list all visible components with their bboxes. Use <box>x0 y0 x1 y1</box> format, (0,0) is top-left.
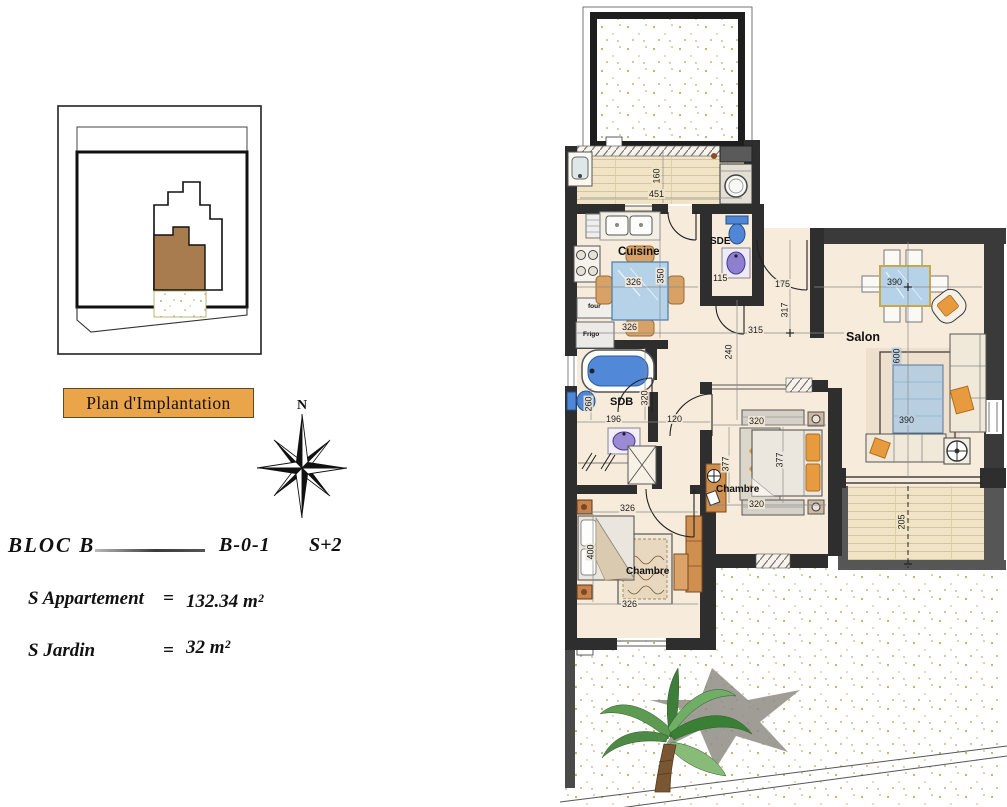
dim-rug-length: 600 <box>892 347 902 364</box>
site-plan <box>57 105 262 355</box>
dim-terrace-depth: 205 <box>897 513 907 530</box>
site-plan-caption-text: Plan d'Implantation <box>86 393 230 414</box>
room-label-chambre-bottom: Chambre <box>626 566 669 577</box>
dim-hall-depth: 240 <box>724 343 734 360</box>
level-label: S+2 <box>309 534 342 557</box>
kitchen-sink-icon <box>586 212 660 240</box>
site-plan-drawing <box>57 105 262 355</box>
compass-rose: N <box>255 396 350 518</box>
area-garden-equals: = <box>163 640 174 662</box>
dim-entry-door: 175 <box>774 279 791 289</box>
room-label-chambre-middle: Chambre <box>716 484 759 495</box>
dim-corridor-width: 120 <box>666 414 683 424</box>
dim-wc-height: 260 <box>584 395 594 412</box>
room-label-sdb: SDB <box>610 396 633 408</box>
dim-sdb-width: 196 <box>605 414 622 424</box>
area-garden-value: 32 m² <box>186 637 230 659</box>
dim-bedroom2-top: 320 <box>748 416 765 426</box>
dim-kitchen-width: 326 <box>621 322 638 332</box>
sofa-bottom-icon <box>866 434 946 462</box>
unit-label: B-0-1 <box>219 534 271 557</box>
terrace <box>838 486 1006 570</box>
dim-salon-table: 390 <box>886 277 903 287</box>
dim-hall-width: 315 <box>747 325 764 335</box>
area-apartment-equals: = <box>163 588 174 610</box>
garden-top <box>583 7 752 150</box>
bathtub-icon <box>582 350 654 392</box>
room-label-sde: SDE <box>710 236 731 247</box>
compass-star <box>257 414 347 518</box>
dim-kitchen-depth: 350 <box>656 267 666 284</box>
appliance-label-frigo: Frigo <box>583 331 599 338</box>
room-label-cuisine: Cuisine <box>618 246 660 258</box>
bedroom2-bed-icon <box>752 430 822 496</box>
area-apartment-value: 132.34 m² <box>186 591 263 613</box>
appliance-label-four: four <box>588 303 601 310</box>
title-divider-line <box>95 549 205 552</box>
area-apartment-label: S Appartement <box>28 588 144 610</box>
dim-bedroom2-left: 377 <box>721 455 731 472</box>
dim-kitchen-table: 326 <box>625 277 642 287</box>
dim-bedroom1-top: 326 <box>619 503 636 513</box>
dim-bedroom2-bottom: 320 <box>748 499 765 509</box>
loggia-sink-icon <box>568 152 592 186</box>
floor-plan-sheet: Plan d'Implantation N BLOC B B-0-1 S+2 S… <box>0 0 1007 807</box>
area-garden-label: S Jardin <box>28 640 95 662</box>
loggia-railing <box>577 146 744 156</box>
dim-entry-depth: 317 <box>780 301 790 318</box>
dim-rug-width: 390 <box>898 415 915 425</box>
dim-loggia-width: 451 <box>648 189 665 199</box>
stove-icon <box>574 246 600 282</box>
dim-sde-width: 115 <box>712 273 728 283</box>
dim-loggia-depth: 160 <box>652 167 662 184</box>
dim-bedroom1-bottom: 326 <box>621 599 638 609</box>
room-label-salon: Salon <box>846 330 880 344</box>
dim-bedroom1-depth: 400 <box>586 543 596 560</box>
site-plan-caption: Plan d'Implantation <box>63 388 254 418</box>
bloc-label: BLOC B <box>8 533 95 558</box>
compass-north-label: N <box>297 398 307 413</box>
salon-rug <box>866 348 960 448</box>
shower-box-icon <box>628 446 656 484</box>
sofa-right-icon <box>950 334 986 432</box>
dim-bedroom2-right: 377 <box>775 451 785 468</box>
garden-boundary-wall <box>565 640 575 788</box>
dim-sdb-wall: 320 <box>640 389 650 406</box>
salon-plant-icon <box>944 438 970 464</box>
site-plan-garden-patch <box>154 291 206 317</box>
